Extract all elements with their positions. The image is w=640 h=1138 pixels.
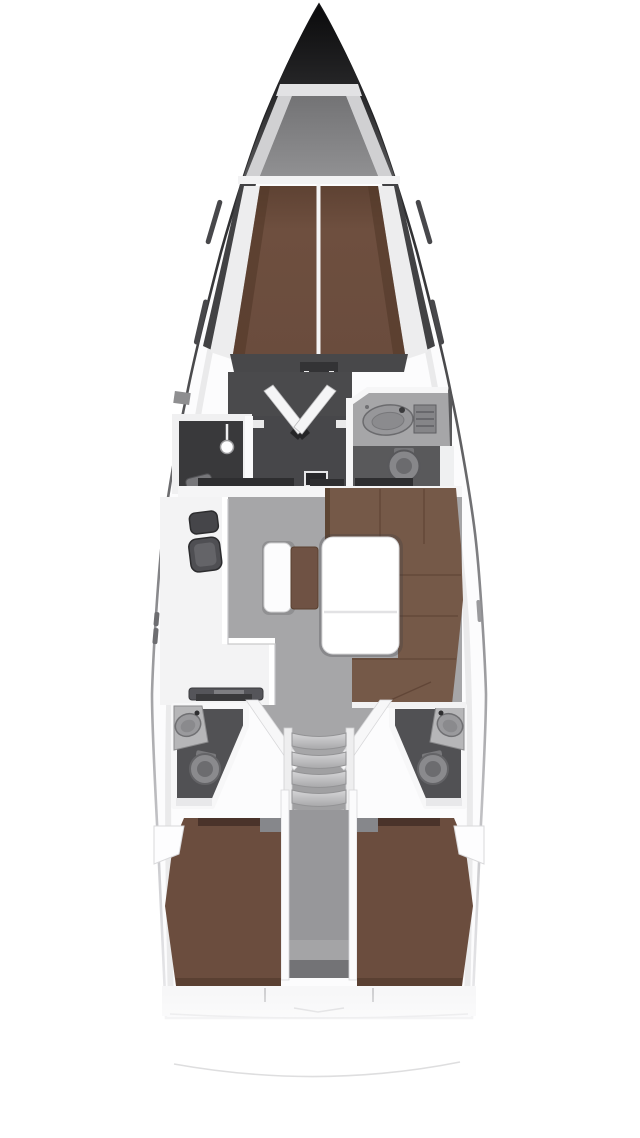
corner-box <box>357 818 378 832</box>
faucet <box>439 711 444 716</box>
bow-deck-cap <box>276 84 362 96</box>
sofa-end-wall <box>352 702 466 708</box>
toilet-bowl-inner <box>197 761 213 777</box>
salon-bulkhead-slat-1 <box>198 478 294 487</box>
corridor-light-strip <box>289 940 349 960</box>
toilet-bowl-inner <box>425 761 441 777</box>
double-berth <box>357 818 473 986</box>
galley-sink-small <box>189 510 219 534</box>
salon-table <box>319 534 403 657</box>
berth-foot-shade <box>357 978 462 986</box>
faucet <box>195 711 200 716</box>
v-berth-center-seam <box>317 184 321 356</box>
bathroom-locker <box>440 446 454 492</box>
center-seat-cushion <box>291 547 318 609</box>
galley-sinks <box>185 510 224 572</box>
corridor-wall-starboard <box>349 790 357 980</box>
aft-corridor <box>281 790 357 980</box>
faucet <box>399 407 405 413</box>
bathroom-wall-left <box>346 398 353 494</box>
yacht-floor-plan-page <box>0 0 640 1138</box>
corner-box <box>260 818 281 832</box>
table-top <box>322 537 399 654</box>
stern-fade <box>120 992 520 1118</box>
hull-window-port-fwd <box>205 199 223 245</box>
salon-bulkhead-slat-3 <box>355 478 413 487</box>
aft-cabin-port <box>154 818 281 986</box>
berth-headboard <box>374 818 440 826</box>
aft-cabin-starboard <box>357 818 484 986</box>
settee-side <box>398 545 463 658</box>
side-cabinet <box>173 391 191 405</box>
yacht-floor-plan <box>0 0 640 1138</box>
soap-dish <box>365 405 369 409</box>
corridor-end-dark <box>289 960 349 978</box>
center-seat-base <box>264 543 291 612</box>
counter-dark-strip <box>196 694 252 701</box>
shelf <box>426 798 462 806</box>
toilet-bowl-inner <box>396 458 412 474</box>
berth-headboard <box>198 818 264 826</box>
corridor-wall-port <box>281 790 289 980</box>
salon-bulkhead-slat-2 <box>310 479 344 487</box>
center-seat <box>262 541 318 615</box>
shelf <box>176 798 212 806</box>
stern <box>120 986 520 1118</box>
settee-leg <box>352 658 457 704</box>
double-berth <box>165 818 281 986</box>
bow-bulkhead <box>238 176 400 184</box>
berth-foot-shade <box>176 978 281 986</box>
shower-head <box>221 441 234 454</box>
galley-sink-large-inner <box>193 542 217 567</box>
hull-window-starboard-fwd <box>415 199 433 245</box>
